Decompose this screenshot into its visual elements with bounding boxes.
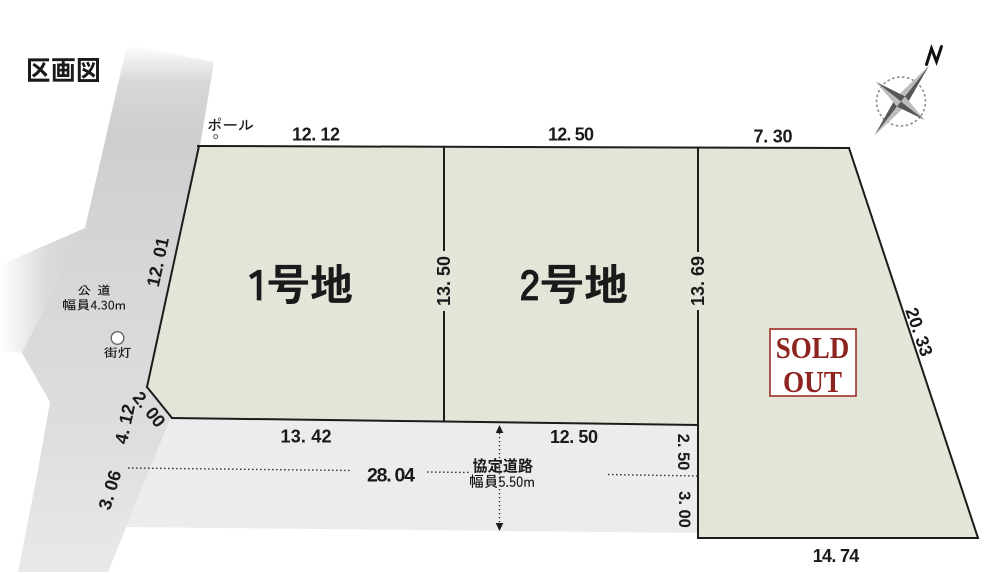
svg-text:14. 74: 14. 74 (813, 546, 860, 566)
svg-text:SOLD: SOLD (776, 330, 850, 365)
svg-text:13. 50: 13. 50 (434, 256, 454, 306)
svg-text:28. 04: 28. 04 (367, 465, 415, 487)
svg-text:12. 50: 12. 50 (550, 427, 598, 447)
svg-text:OUT: OUT (783, 364, 842, 399)
svg-text:13. 42: 13. 42 (281, 427, 332, 447)
svg-text:13. 69: 13. 69 (688, 256, 708, 306)
svg-text:7. 30: 7. 30 (754, 126, 793, 146)
svg-text:3. 00: 3. 00 (675, 491, 693, 528)
svg-text:12. 12: 12. 12 (292, 125, 340, 145)
svg-text:2. 50: 2. 50 (674, 434, 692, 471)
svg-text:12. 50: 12. 50 (548, 125, 594, 145)
